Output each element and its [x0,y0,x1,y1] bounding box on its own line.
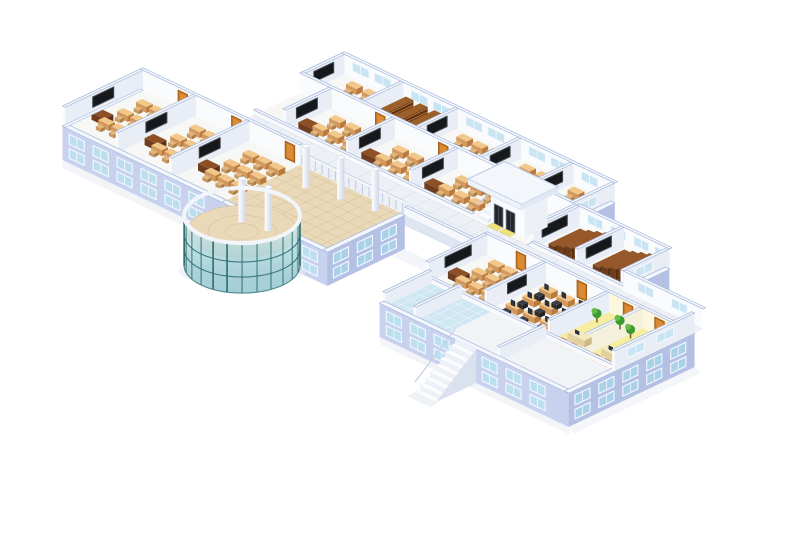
building-rendering-stage [0,0,800,550]
column [238,177,245,223]
column [303,144,310,188]
column [372,167,379,211]
building-cutaway-rendering [0,0,800,550]
column [337,156,344,200]
